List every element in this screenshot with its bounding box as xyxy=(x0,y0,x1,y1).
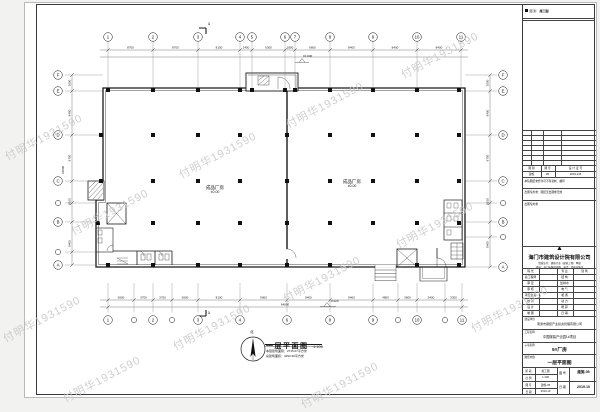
north-label: 北 xyxy=(250,331,254,335)
dim-label: 3000 xyxy=(486,79,490,86)
column xyxy=(457,179,461,183)
sign-cell: 建 筑 xyxy=(581,269,588,273)
sign-cell: 结 构 xyxy=(561,275,568,279)
dim-label: 8400 xyxy=(348,296,355,300)
dim-label: 4800 xyxy=(382,296,389,300)
section-mark-bottom xyxy=(199,310,206,316)
column xyxy=(196,133,200,137)
column xyxy=(196,263,200,267)
stage-label: 图 别 xyxy=(530,9,537,13)
dim-label: 9000 xyxy=(260,296,267,300)
toilet-block-right xyxy=(444,200,462,240)
dim-label: 2400 xyxy=(243,46,250,50)
titleblock-line xyxy=(555,165,556,177)
dim-label: 3300 xyxy=(450,296,457,300)
grid-bubble-label: C xyxy=(56,179,59,184)
sign-cell: 专 业 xyxy=(561,269,568,273)
column xyxy=(99,133,103,137)
title-block: 图 别 施工图 本院图纸未经许可不得复制、翻印 出图专用章：图纸无出图章无效 出… xyxy=(522,4,596,395)
bottom-row-label: 图 号 xyxy=(525,383,531,387)
sign-cell: 审 核 xyxy=(527,287,534,291)
dim-label: 8100 xyxy=(68,198,72,205)
titleblock-line xyxy=(541,165,542,177)
sign-cell: 日 期 xyxy=(561,311,568,315)
dim-label: 34800 xyxy=(61,165,65,174)
sheet-number-value: 建施-05 xyxy=(577,370,589,375)
column xyxy=(328,133,332,137)
dim-label: 8400 xyxy=(68,240,72,247)
sign-cell: 动 力 xyxy=(561,299,568,303)
dim-label: 8400 xyxy=(348,46,355,50)
room-label-left: 成品厂房 ±0.00 xyxy=(190,186,240,194)
column xyxy=(151,179,155,183)
column xyxy=(415,179,419,183)
bottom-row-value: 1:100 xyxy=(542,376,549,379)
grid-bubble-label: 10 xyxy=(415,35,420,40)
dim-label: 8700 xyxy=(127,46,134,50)
sign-cell: 制 图 xyxy=(527,311,534,315)
grid-bubble-label: 11 xyxy=(459,35,464,40)
dim-label: 8700 xyxy=(486,154,490,161)
sign-cell: 审 定 xyxy=(527,281,534,285)
column xyxy=(151,88,155,92)
section-number-bottom: 1 xyxy=(208,312,210,316)
project-row-label: 建设单位 xyxy=(525,317,535,321)
dim-label: 8100 xyxy=(216,296,223,300)
sign-cell: 总工程师 xyxy=(525,275,537,279)
project-row-label: 工程名称 xyxy=(525,330,535,334)
dim-label: 8100 xyxy=(486,198,490,205)
titleblock-line xyxy=(523,188,597,189)
titleblock-line xyxy=(539,268,540,316)
sign-cell: 院 长 xyxy=(527,269,534,273)
titleblock-line xyxy=(523,145,597,146)
grid-bubble xyxy=(442,317,447,322)
dim-label: 5000 xyxy=(182,296,189,300)
titleblock-line xyxy=(523,246,597,247)
column xyxy=(415,88,419,92)
column xyxy=(250,88,254,92)
column xyxy=(328,221,332,225)
dim-label: 5400 xyxy=(428,296,435,300)
grid-bubble-label: C xyxy=(501,179,504,184)
dim-label: 3700 xyxy=(140,296,147,300)
titleblock-line xyxy=(523,150,597,151)
dim-label: 1800 xyxy=(287,46,294,50)
building-walls xyxy=(88,28,465,361)
column xyxy=(96,221,100,225)
dim-label: 8700 xyxy=(68,154,72,161)
column xyxy=(285,221,289,225)
column xyxy=(457,88,461,92)
grid-bubble-label: F xyxy=(57,73,60,78)
column xyxy=(151,133,155,137)
column xyxy=(106,263,110,267)
sign-cell: 概 算 xyxy=(561,305,568,309)
doc-header-cell: 图 号 xyxy=(544,166,550,170)
plan-note-2: 总建筑面积：4293.39平方米 xyxy=(266,355,304,358)
dim-label: 3600 xyxy=(404,296,411,300)
titleblock-line xyxy=(557,367,558,395)
project-row-value: 5#厂房 xyxy=(552,346,567,353)
column xyxy=(151,263,155,267)
titleblock-line xyxy=(523,177,597,178)
plan-note-1: 本层建筑面积：2715.07平方米 xyxy=(266,350,307,353)
column xyxy=(415,133,419,137)
column xyxy=(238,88,242,92)
titleblock-line xyxy=(573,268,574,316)
project-row-label: 子项名称 xyxy=(525,343,535,347)
doc-value-cell: 建施 xyxy=(529,172,535,176)
grid-bubble-label: B xyxy=(57,220,60,225)
project-row-value: 一层平面图 xyxy=(548,359,572,366)
elevation-text-top: ±0.000 xyxy=(303,55,312,58)
dim-label: 8700 xyxy=(172,46,179,50)
dim-label: 6600 xyxy=(309,46,316,50)
column xyxy=(238,221,242,225)
column xyxy=(371,88,375,92)
bottom-row-value: 2019.10 xyxy=(541,390,551,393)
sheet-number-label: 图 号 xyxy=(559,371,566,375)
doc-value-cell: 2019-116 xyxy=(570,172,582,176)
grid-bubble-label: B xyxy=(502,220,505,225)
bottom-row-label: 日 期 xyxy=(525,390,531,394)
column xyxy=(285,179,289,183)
sign-cell: 电 气 xyxy=(561,287,568,291)
dim-label: 8400 xyxy=(305,296,312,300)
elevation-text-bottom: -0.020 xyxy=(330,300,339,303)
project-row-value: 中国服装产业园1#项目 xyxy=(543,334,576,339)
grid-bubble xyxy=(500,200,505,205)
column xyxy=(457,133,461,137)
grid-bubble xyxy=(395,317,400,322)
titleblock-line xyxy=(569,367,570,395)
project-row-value: 南通市服装产业投资管理有限公司 xyxy=(537,322,582,326)
stamp-note: 出图专用章：图纸无出图章无效 xyxy=(525,190,563,194)
sign-cell: 设 计 xyxy=(527,305,534,309)
grid-bubble xyxy=(500,234,505,239)
titleblock-line xyxy=(523,200,597,201)
column xyxy=(196,88,200,92)
stamp-label: 出图专用章 xyxy=(525,202,538,206)
sign-cell: 暖 通 xyxy=(561,293,568,297)
grid-bubble xyxy=(131,317,136,322)
stage-value: 施工图 xyxy=(540,9,549,13)
titleblock-line xyxy=(523,160,597,161)
sign-cell: 校 对 xyxy=(527,299,534,303)
room-label-right: 成品厂房 ±0.00 xyxy=(327,180,377,188)
titleblock-line xyxy=(561,130,562,165)
titleblock-line xyxy=(557,381,597,382)
sign-cell: 给排水 xyxy=(560,281,569,285)
project-row-label: 图纸内容 xyxy=(525,355,535,359)
column xyxy=(371,221,375,225)
grid-bubble-label: A xyxy=(502,265,505,270)
grid-bubble xyxy=(169,317,174,322)
date-label: 日 期 xyxy=(559,385,566,389)
titleblock-line xyxy=(543,130,544,165)
titleblock-line xyxy=(523,140,597,141)
column xyxy=(151,221,155,225)
grid-bubble xyxy=(55,249,60,254)
dim-label: 8400 xyxy=(392,46,399,50)
titleblock-line xyxy=(535,367,536,395)
column xyxy=(238,133,242,137)
column xyxy=(457,263,461,267)
titleblock-line xyxy=(531,130,532,165)
company-name: 海门市建筑设计院有限公司 xyxy=(528,254,590,261)
column xyxy=(285,133,289,137)
canopy xyxy=(420,267,447,281)
column xyxy=(99,179,103,183)
dim-label: 64800 xyxy=(281,303,290,307)
column xyxy=(238,263,242,267)
titleblock-line xyxy=(523,155,597,156)
column xyxy=(196,179,200,183)
dim-label: 3000 xyxy=(68,79,72,86)
titleblock-line xyxy=(523,135,597,136)
dim-label: 8400 xyxy=(486,241,490,248)
grid-bubble xyxy=(55,200,60,205)
stage-marker-square xyxy=(525,9,528,12)
doc-header-cell: 设 计 证 号 xyxy=(569,166,583,170)
dim-label: 8100 xyxy=(216,46,223,50)
column xyxy=(293,88,297,92)
titleblock-line xyxy=(523,130,597,131)
grid-bubble-label: F xyxy=(502,73,505,78)
grid-bubble-label: A xyxy=(57,263,60,268)
grid-bubble-label: 10 xyxy=(415,318,420,323)
column xyxy=(415,221,419,225)
column xyxy=(196,221,200,225)
column xyxy=(328,88,332,92)
doc-value-cell: 05 xyxy=(546,172,549,176)
dim-label: 8400 xyxy=(486,109,490,116)
section-number-top: 1 xyxy=(208,23,210,27)
dim-label: 5000 xyxy=(118,296,125,300)
date-value: 2019.10 xyxy=(577,385,590,389)
bottom-row-label: 比 例 xyxy=(525,376,531,380)
column xyxy=(457,221,461,225)
column xyxy=(285,263,289,267)
grid-bubble-label: E xyxy=(57,89,60,94)
column xyxy=(106,88,110,92)
bottom-row-label: 阶 段 xyxy=(525,369,531,373)
grid-bubble-label: D xyxy=(56,133,59,138)
elevation-symbol-top xyxy=(295,59,309,63)
doc-header-cell: 图 别 xyxy=(528,166,534,170)
grid-bubble-label: D xyxy=(501,133,504,138)
titleblock-line xyxy=(557,268,558,316)
bottom-row-value: 施工图 xyxy=(541,369,549,373)
plan-scale: 1:100 xyxy=(313,344,323,349)
dim-label: 8400 xyxy=(436,46,443,50)
column xyxy=(283,88,287,92)
sign-cell: 项目负责 xyxy=(525,293,537,297)
column xyxy=(238,179,242,183)
column xyxy=(415,263,419,267)
north-arrow xyxy=(241,337,265,361)
dim-label: 3700 xyxy=(159,296,166,300)
copyright-note: 本院图纸未经许可不得复制、翻印 xyxy=(525,179,565,183)
grid-bubble-label: E xyxy=(502,89,505,94)
column xyxy=(371,133,375,137)
bottom-row-value: 建施-05 xyxy=(541,383,550,387)
grid-bubble-label: 11 xyxy=(460,318,465,323)
dim-label: 6300 xyxy=(265,46,272,50)
column xyxy=(328,263,332,267)
dim-label: 8400 xyxy=(68,109,72,116)
